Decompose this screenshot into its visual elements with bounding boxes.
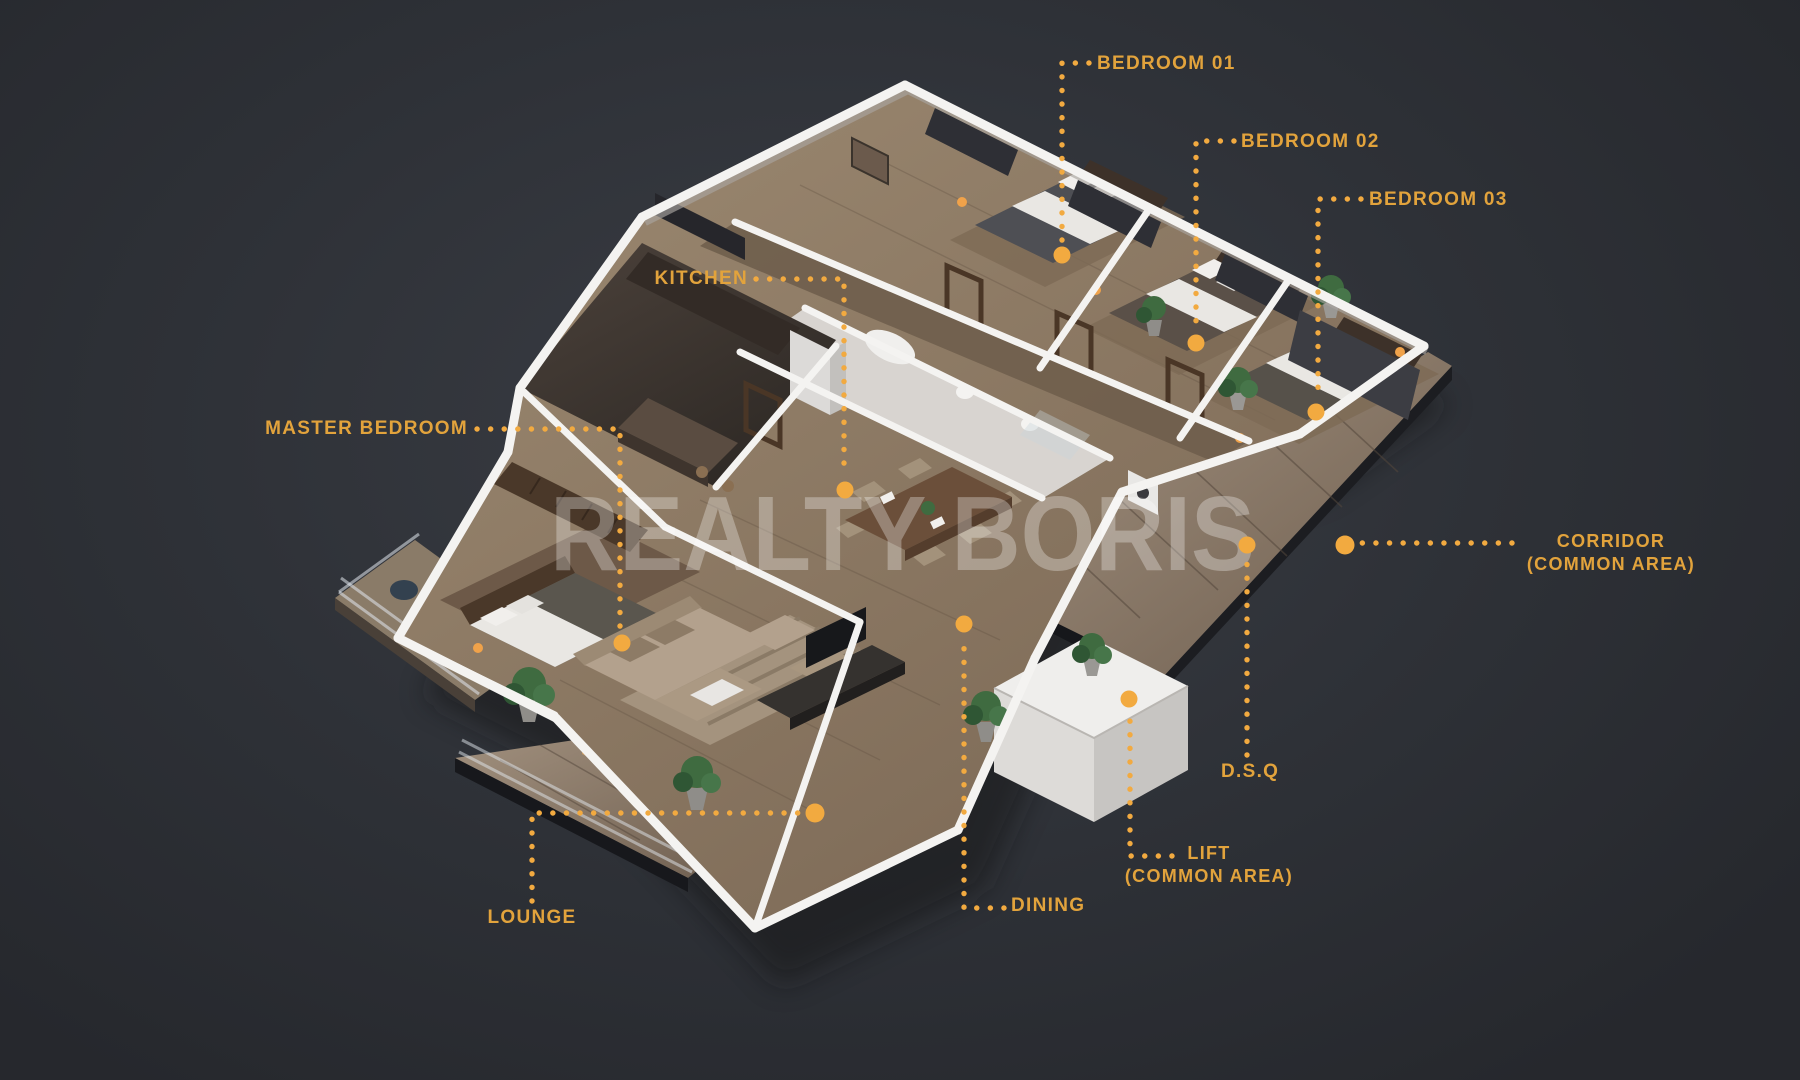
endpoint-dsq	[1239, 537, 1256, 554]
label-dsq: D.S.Q	[1221, 760, 1279, 784]
label-corridor-line2: (COMMON AREA)	[1518, 553, 1704, 576]
label-bedroom-02: BEDROOM 02	[1241, 130, 1380, 154]
endpoint-master-bedroom	[614, 635, 631, 652]
label-corridor: CORRIDOR (COMMON AREA)	[1518, 530, 1704, 576]
endpoint-dining	[956, 616, 973, 633]
label-dining: DINING	[1011, 894, 1085, 918]
label-master-bedroom: MASTER BEDROOM	[265, 417, 468, 441]
wicker-chair	[390, 580, 418, 600]
endpoint-corridor	[1336, 536, 1355, 555]
endpoint-lounge	[806, 804, 825, 823]
endpoint-kitchen	[837, 482, 854, 499]
floor-plan-render: REALTY BORIS BEDROOM 01 BEDROOM 02 BEDRO…	[0, 0, 1800, 1080]
label-bedroom-03: BEDROOM 03	[1369, 188, 1508, 212]
label-lift-line2: (COMMON AREA)	[1116, 865, 1302, 888]
label-bedroom-01: BEDROOM 01	[1097, 52, 1236, 76]
endpoint-bedroom-03	[1308, 404, 1325, 421]
label-lift: LIFT (COMMON AREA)	[1116, 842, 1302, 888]
label-corridor-line1: CORRIDOR	[1557, 531, 1665, 551]
endpoint-bedroom-02	[1188, 335, 1205, 352]
endpoint-bedroom-01	[1054, 247, 1071, 264]
bedside-lamp	[473, 643, 483, 653]
bedside-lamp	[957, 197, 967, 207]
label-lift-line1: LIFT	[1187, 843, 1230, 863]
watermark-text: REALTY BORIS	[550, 475, 1255, 593]
label-lounge: LOUNGE	[477, 906, 587, 930]
endpoint-lift	[1121, 691, 1138, 708]
label-kitchen: KITCHEN	[654, 267, 748, 291]
